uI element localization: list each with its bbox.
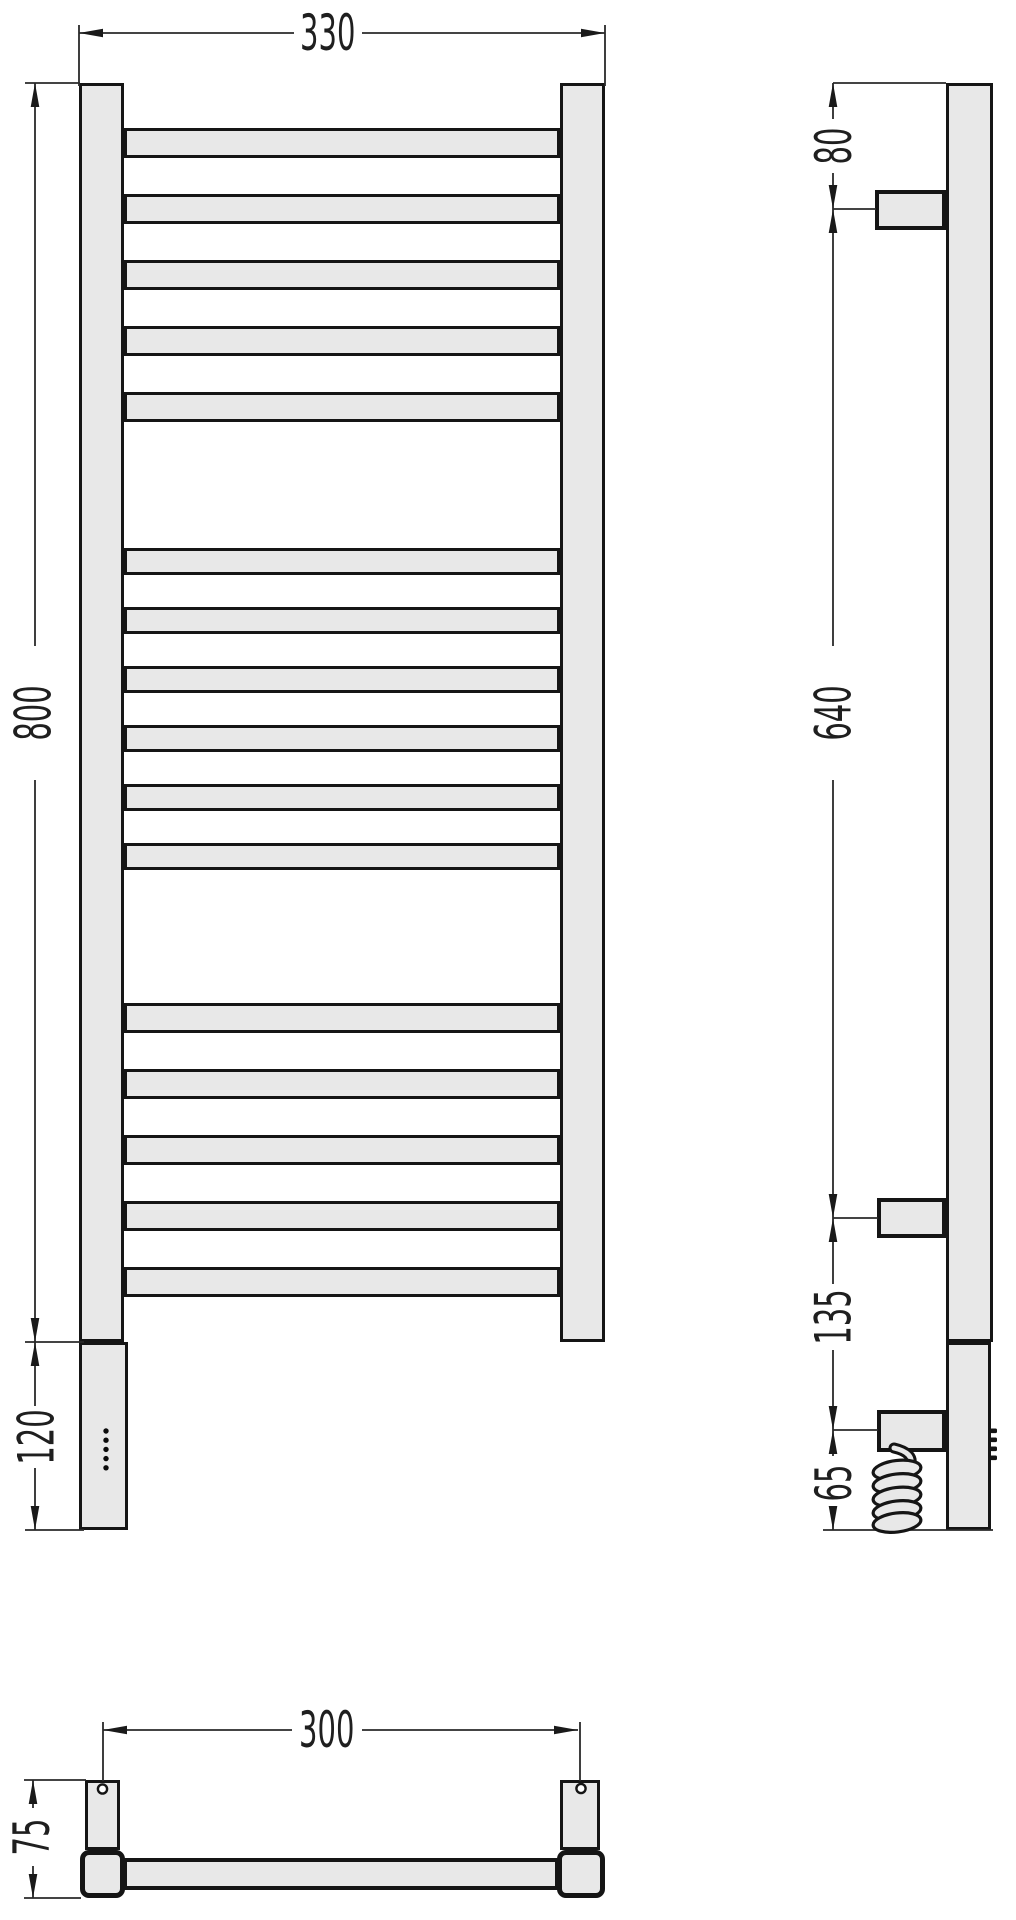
rung — [124, 784, 560, 811]
front-right-post — [560, 83, 605, 1342]
rung — [124, 725, 560, 752]
dim-label-front-width: 330 — [258, 1, 398, 65]
dim-label-bottom-depth: 75 — [0, 1757, 64, 1917]
wall-bracket-top — [875, 190, 946, 230]
bottom-view-bracket-plate-left — [85, 1780, 120, 1850]
side-post — [946, 83, 993, 1342]
dim-label-side-lower-offset: 135 — [802, 1237, 866, 1397]
bottom-view-bracket-plate-right — [560, 1780, 600, 1850]
bottom-view-foot-left — [80, 1850, 125, 1898]
rung — [124, 1267, 560, 1297]
rung — [124, 260, 560, 290]
bottom-view-foot-right — [557, 1850, 605, 1898]
rung — [124, 1069, 560, 1099]
cable-gland-nubs — [990, 1429, 997, 1461]
electrical-connection-box — [877, 1410, 946, 1452]
rung — [124, 326, 560, 356]
rung — [124, 548, 560, 575]
rung — [124, 1135, 560, 1165]
rung — [124, 1201, 560, 1231]
dim-label-side-bracket-span: 640 — [802, 633, 866, 793]
rung — [124, 194, 560, 224]
rung — [124, 666, 560, 693]
side-heating-element-housing — [946, 1342, 991, 1530]
bottom-view-cross-bar — [123, 1858, 559, 1890]
front-left-post — [79, 83, 124, 1342]
technical-drawing: 330 800 120 80 640 135 65 300 75 — [0, 0, 1016, 1920]
wall-bracket-bottom — [877, 1198, 946, 1238]
rung — [124, 392, 560, 422]
dim-label-side-cable-offset: 65 — [802, 1403, 866, 1563]
dim-label-side-top-offset: 80 — [802, 66, 866, 226]
rung — [124, 1003, 560, 1033]
rung — [124, 128, 560, 158]
mounting-holes — [98, 1784, 586, 1794]
heating-element-housing — [79, 1342, 128, 1530]
rung — [124, 843, 560, 870]
dim-label-front-height: 800 — [2, 633, 66, 793]
spiral-power-cable-icon — [872, 1448, 922, 1535]
rung — [124, 607, 560, 634]
dim-label-heater-height: 120 — [5, 1357, 69, 1517]
dim-label-bottom-hole-span: 300 — [257, 1698, 397, 1762]
